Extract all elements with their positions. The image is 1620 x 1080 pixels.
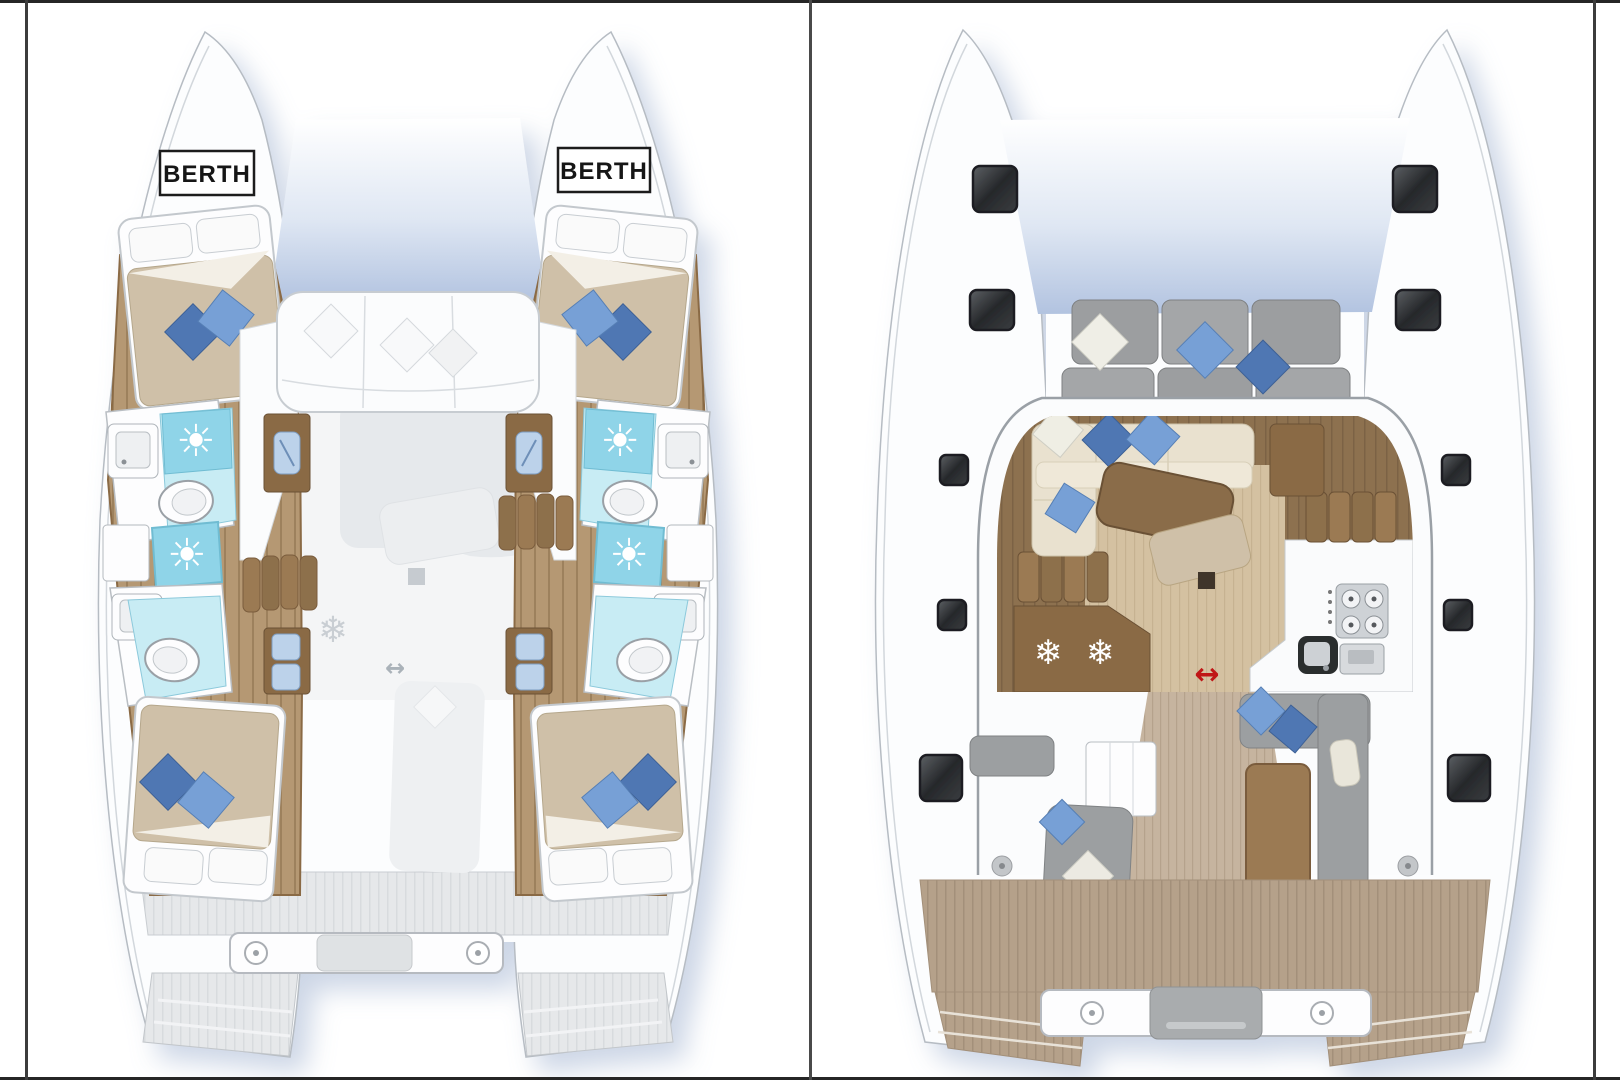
salon-interior: ❄ ❄ [997, 407, 1413, 692]
mast-base [1198, 572, 1215, 589]
pillow [144, 847, 204, 885]
trampoline [270, 118, 546, 302]
hatch [1396, 290, 1440, 330]
trampoline [1000, 118, 1410, 314]
berth-label-port: BERTH [160, 151, 254, 195]
fridge-snowflake-ghost-icon: ❄ [318, 610, 348, 651]
cockpit-bench [970, 736, 1054, 776]
hatch [1448, 755, 1490, 801]
hatch [973, 166, 1017, 212]
aft-deck [920, 880, 1490, 992]
starboard-transom-skirt [518, 973, 673, 1056]
frame-left-border [25, 0, 28, 1080]
frame-right-border [1593, 0, 1596, 1080]
hatch [1442, 455, 1470, 485]
cockpit-locker [1086, 742, 1156, 816]
cabinet [103, 525, 149, 581]
sink [272, 634, 300, 660]
freezer-snowflake-icon: ❄ [1086, 633, 1115, 673]
shower-sun-icon: ☀ [176, 416, 215, 467]
hatch [1393, 166, 1437, 212]
hatch [920, 755, 962, 801]
berth-label-text: BERTH [560, 158, 648, 185]
hatch [1444, 600, 1472, 630]
pillow [128, 223, 193, 263]
transom-handle [1166, 1022, 1246, 1029]
sink [272, 664, 300, 690]
hatch [940, 455, 968, 485]
cabin-deck-plan: ❄ ↔ ☀ [98, 32, 717, 1057]
port-transom-skirt [143, 973, 298, 1056]
mast-base-ghost [408, 568, 425, 585]
transom-step [1150, 987, 1262, 1039]
panel-divider [809, 0, 812, 1080]
pillow [196, 214, 261, 254]
hatch [970, 290, 1014, 330]
slide-door-arrow-ghost-icon: ↔ [385, 654, 405, 682]
shower-stall: ☀ [152, 522, 222, 588]
main-deck-plan: ❄ ❄ [876, 30, 1535, 1066]
aft-bathroom [110, 584, 232, 706]
pillow [208, 848, 268, 886]
catamaran-floorplan-image: ❄ ↔ ☀ [0, 0, 1620, 1080]
sliding-door-arrow-icon: ↔ [1194, 657, 1219, 692]
transom-step [317, 935, 412, 971]
shower-sun-icon: ☀ [167, 530, 206, 581]
berth-label-text: BERTH [163, 161, 251, 188]
hatch [938, 600, 966, 630]
forward-bench [277, 292, 539, 412]
nav-cabinet [1270, 424, 1324, 496]
fridge-snowflake-icon: ❄ [1034, 633, 1063, 673]
berth-label-starboard: BERTH [558, 148, 650, 192]
